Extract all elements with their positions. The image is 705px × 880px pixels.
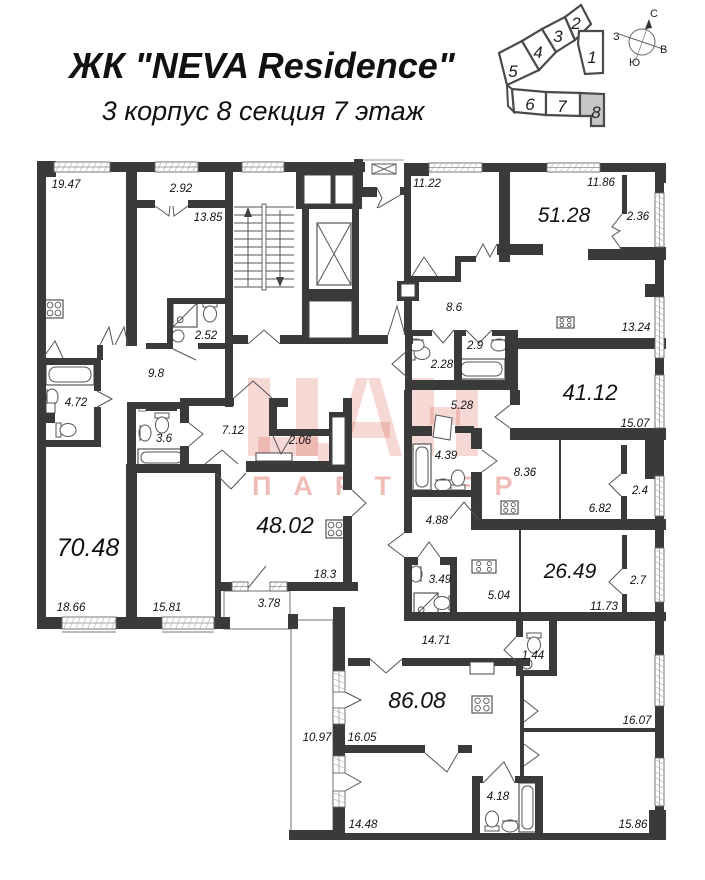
svg-text:18.66: 18.66 bbox=[57, 602, 86, 614]
svg-text:4.39: 4.39 bbox=[435, 450, 458, 462]
svg-text:9.8: 9.8 bbox=[148, 368, 165, 380]
svg-text:4: 4 bbox=[533, 43, 542, 62]
svg-text:11.22: 11.22 bbox=[413, 178, 442, 190]
svg-text:51.28: 51.28 bbox=[538, 204, 591, 227]
svg-text:З: З bbox=[613, 31, 620, 43]
svg-text:13.85: 13.85 bbox=[194, 212, 223, 224]
svg-text:26.49: 26.49 bbox=[543, 560, 597, 583]
svg-text:3.49: 3.49 bbox=[429, 574, 452, 586]
svg-text:15.86: 15.86 bbox=[619, 819, 648, 831]
svg-text:2.28: 2.28 bbox=[430, 359, 454, 371]
svg-text:4.88: 4.88 bbox=[426, 515, 449, 527]
svg-text:5: 5 bbox=[508, 62, 518, 81]
svg-text:2.36: 2.36 bbox=[626, 211, 650, 223]
svg-text:16.07: 16.07 bbox=[623, 715, 652, 727]
svg-text:2.06: 2.06 bbox=[288, 435, 312, 447]
svg-text:3.78: 3.78 bbox=[258, 598, 281, 610]
svg-text:11.73: 11.73 bbox=[590, 601, 619, 613]
svg-text:2.7: 2.7 bbox=[629, 575, 647, 587]
svg-text:8.36: 8.36 bbox=[514, 467, 537, 479]
svg-text:15.81: 15.81 bbox=[153, 602, 182, 614]
svg-text:15.07: 15.07 bbox=[621, 418, 650, 430]
svg-text:С: С bbox=[650, 8, 658, 20]
svg-text:2.92: 2.92 bbox=[169, 183, 193, 195]
svg-text:5.28: 5.28 bbox=[451, 400, 474, 412]
svg-text:13.24: 13.24 bbox=[622, 322, 651, 334]
svg-text:41.12: 41.12 bbox=[562, 380, 617, 405]
svg-text:19.47: 19.47 bbox=[52, 179, 81, 191]
svg-text:4.72: 4.72 bbox=[65, 397, 88, 409]
svg-text:ПАРТНЕР: ПАРТНЕР bbox=[252, 471, 535, 501]
svg-text:10.97: 10.97 bbox=[303, 732, 332, 744]
svg-text:8.6: 8.6 bbox=[446, 302, 463, 314]
svg-text:11.86: 11.86 bbox=[587, 177, 616, 189]
svg-text:1: 1 bbox=[587, 48, 596, 67]
svg-text:5.04: 5.04 bbox=[488, 590, 510, 602]
svg-text:2.9: 2.9 bbox=[466, 340, 484, 352]
svg-text:В: В bbox=[660, 44, 667, 56]
svg-text:3: 3 bbox=[553, 27, 563, 46]
svg-text:14.71: 14.71 bbox=[422, 635, 451, 647]
svg-text:1.44: 1.44 bbox=[522, 650, 544, 662]
svg-text:14.48: 14.48 bbox=[349, 819, 378, 831]
svg-text:86.08: 86.08 bbox=[388, 687, 446, 713]
svg-text:6.82: 6.82 bbox=[589, 503, 612, 515]
svg-text:70.48: 70.48 bbox=[57, 534, 120, 562]
svg-text:7.12: 7.12 bbox=[222, 425, 245, 437]
svg-text:ЖК "NEVA Residence": ЖК "NEVA Residence" bbox=[67, 45, 456, 86]
svg-text:48.02: 48.02 bbox=[256, 512, 314, 538]
svg-text:8: 8 bbox=[591, 103, 601, 122]
svg-text:4.18: 4.18 bbox=[487, 791, 510, 803]
svg-text:2.4: 2.4 bbox=[631, 485, 648, 497]
svg-text:3 корпус 8 секция 7 этаж: 3 корпус 8 секция 7 этаж bbox=[102, 96, 426, 126]
svg-text:18.3: 18.3 bbox=[314, 569, 337, 581]
svg-text:7: 7 bbox=[557, 97, 567, 116]
svg-text:2.52: 2.52 bbox=[194, 330, 218, 342]
svg-text:2: 2 bbox=[570, 14, 581, 33]
svg-text:Ю: Ю bbox=[629, 57, 640, 69]
svg-text:16.05: 16.05 bbox=[348, 732, 377, 744]
svg-text:6: 6 bbox=[525, 95, 535, 114]
svg-text:3.6: 3.6 bbox=[156, 433, 173, 445]
